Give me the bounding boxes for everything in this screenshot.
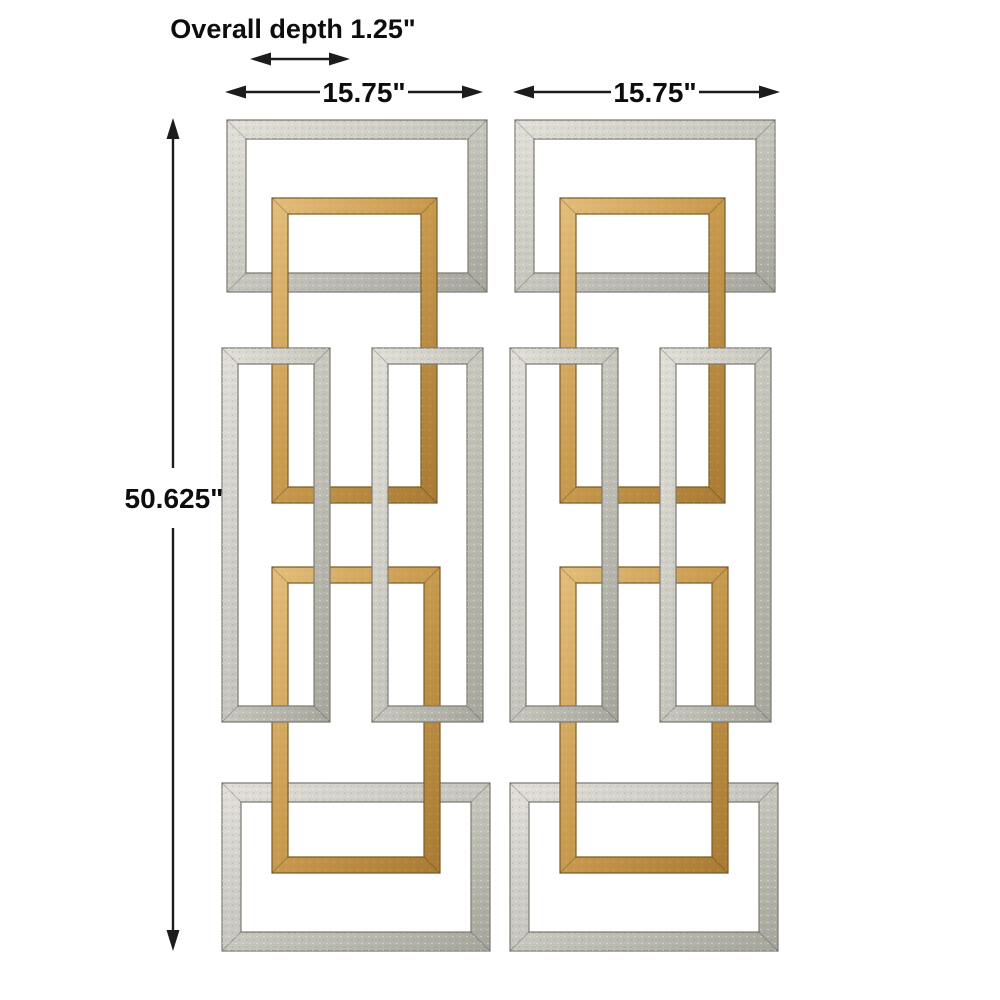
depth-dimension-label: Overall depth 1.25" bbox=[170, 14, 415, 44]
diagram-svg: Overall depth 1.25" 15.75" 15.75" 50.625… bbox=[0, 0, 1000, 1000]
height-dimension-label: 50.625" bbox=[125, 483, 224, 514]
panel-right-width-label: 15.75" bbox=[613, 77, 696, 108]
product-dimension-diagram: Overall depth 1.25" 15.75" 15.75" 50.625… bbox=[0, 0, 1000, 1000]
panel-left-width-label: 15.75" bbox=[322, 77, 405, 108]
